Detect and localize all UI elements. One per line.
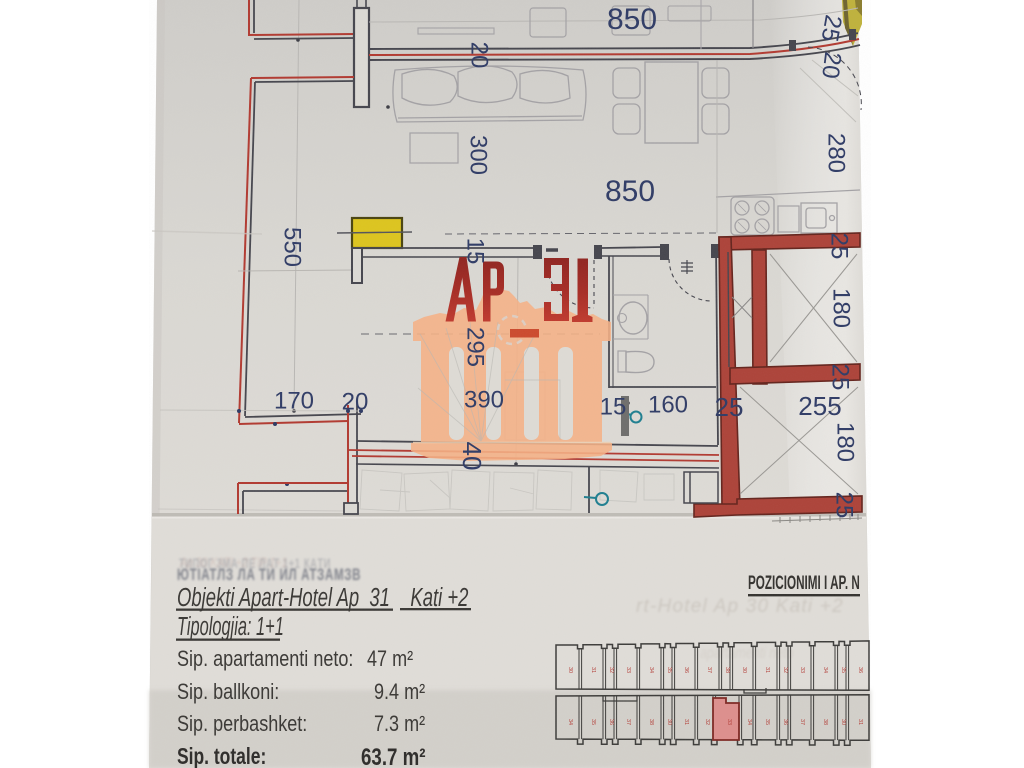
svg-text:38: 38	[724, 667, 730, 673]
svg-text:255: 255	[798, 391, 841, 421]
svg-text:36: 36	[683, 667, 689, 673]
svg-text:280: 280	[823, 133, 850, 173]
svg-text:15: 15	[600, 393, 627, 420]
svg-text:25: 25	[826, 233, 853, 260]
svg-text:160: 160	[648, 391, 688, 418]
svg-text:33: 33	[625, 667, 631, 673]
svg-text:32: 32	[704, 719, 710, 725]
svg-text:25: 25	[827, 364, 854, 391]
svg-text:34: 34	[822, 667, 828, 673]
svg-text:Sip. ballkoni:: Sip. ballkoni:	[177, 680, 279, 704]
svg-text:30: 30	[567, 667, 573, 673]
svg-text:40: 40	[457, 442, 487, 471]
svg-text:25: 25	[816, 13, 847, 44]
svg-text:35: 35	[666, 667, 672, 673]
svg-text:31: 31	[683, 719, 689, 725]
svg-text:31: 31	[764, 667, 770, 673]
svg-text:47 m²: 47 m²	[367, 647, 413, 671]
svg-text:35: 35	[840, 667, 846, 673]
svg-text:32: 32	[608, 667, 614, 673]
svg-text:36: 36	[782, 719, 788, 725]
svg-text:Sip. perbashket:: Sip. perbashket:	[177, 712, 307, 736]
svg-text:33: 33	[726, 719, 732, 725]
svg-text:37: 37	[706, 667, 712, 673]
svg-text:7.3 m²: 7.3 m²	[374, 712, 425, 736]
svg-text:33: 33	[799, 667, 805, 673]
svg-text:850: 850	[605, 175, 655, 208]
svg-text:30: 30	[741, 667, 747, 673]
svg-text:31: 31	[590, 667, 596, 673]
svg-text:180: 180	[832, 422, 859, 462]
svg-text:Tipologjia: 1+1: Tipologjia: 1+1	[177, 611, 284, 641]
svg-text:63.7 m²: 63.7 m²	[361, 744, 426, 768]
svg-text:550: 550	[279, 227, 306, 267]
svg-text:30: 30	[840, 719, 846, 725]
svg-text:POZICIONIMI I AP. N: POZICIONIMI I AP. N	[748, 572, 860, 594]
svg-text:rt-Hotel Ap 30 Kati +2: rt-Hotel Ap 30 Kati +2	[636, 596, 844, 617]
svg-text:ЮTІATЛЗ ЛA TИ ИЛ ATЗAMЗB: ЮTІATЛЗ ЛA TИ ИЛ ATЗAMЗB	[177, 566, 361, 585]
svg-text:Sip. apartamenti neto:: Sip. apartamenti neto:	[177, 647, 353, 671]
svg-text:30: 30	[666, 719, 672, 725]
svg-text:25: 25	[831, 492, 858, 519]
svg-text:34: 34	[648, 667, 654, 673]
svg-text:38: 38	[648, 719, 654, 725]
svg-text:170: 170	[274, 387, 314, 414]
svg-text:37: 37	[799, 719, 805, 725]
svg-text:25: 25	[715, 392, 744, 422]
svg-text:9.4 m²: 9.4 m²	[374, 680, 425, 704]
svg-text:37: 37	[625, 719, 631, 725]
svg-text:36: 36	[857, 667, 863, 673]
svg-text:34: 34	[567, 719, 573, 725]
svg-text:35: 35	[764, 719, 770, 725]
svg-text:850: 850	[607, 3, 657, 36]
svg-text:295: 295	[462, 327, 489, 367]
svg-text:20: 20	[466, 42, 493, 69]
svg-text:300: 300	[465, 135, 492, 175]
svg-text:390: 390	[464, 386, 504, 413]
svg-text:20: 20	[816, 50, 846, 80]
svg-text:31: 31	[857, 719, 863, 725]
svg-text:15: 15	[462, 238, 489, 265]
svg-text:Sip. totale:: Sip. totale:	[177, 745, 266, 768]
svg-text:34: 34	[746, 719, 752, 725]
svg-text:32: 32	[782, 667, 788, 673]
svg-text:20: 20	[342, 388, 369, 415]
svg-text:Objekti Apart-Hotel Ap 31: Objekti Apart-Hotel Ap 31 Kati +2	[177, 583, 469, 612]
svg-text:36: 36	[608, 719, 614, 725]
svg-text:35: 35	[590, 719, 596, 725]
svg-text:38: 38	[822, 719, 828, 725]
svg-text:180: 180	[828, 288, 855, 328]
